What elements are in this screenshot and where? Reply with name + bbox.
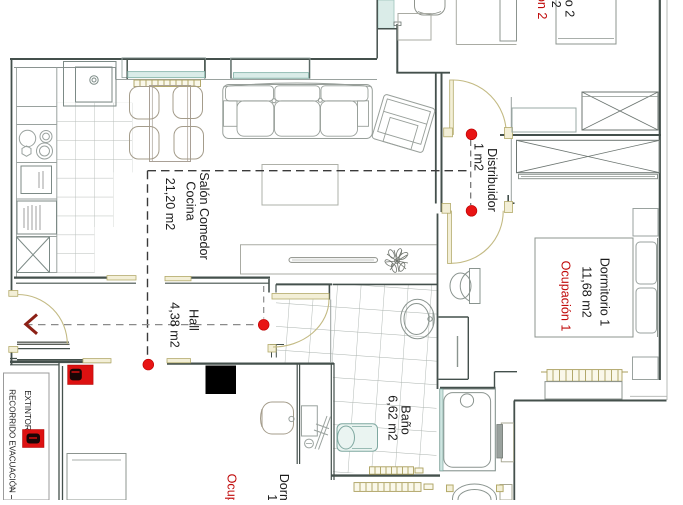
svg-text:Salón Comedor: Salón Comedor xyxy=(197,172,211,260)
svg-text:Ocupación 1: Ocupación 1 xyxy=(225,474,239,500)
svg-text:Dormitorio 2: Dormitorio 2 xyxy=(563,0,577,17)
svg-text:11,68 m2: 11,68 m2 xyxy=(580,266,594,318)
svg-text:Hall: Hall xyxy=(187,309,201,331)
svg-text:21,20 m2: 21,20 m2 xyxy=(163,178,177,231)
svg-text:11,96 m2: 11,96 m2 xyxy=(549,0,563,8)
svg-text:4,38 m2: 4,38 m2 xyxy=(168,302,182,348)
svg-text:Dormitorio 1: Dormitorio 1 xyxy=(598,258,612,327)
svg-text:Ocupación 2: Ocupación 2 xyxy=(535,0,549,19)
svg-text:RECORRIDO EVACUACIÓN: RECORRIDO EVACUACIÓN xyxy=(8,389,17,493)
svg-text:11,15 m2: 11,15 m2 xyxy=(265,494,279,500)
svg-text:Ocupación 1: Ocupación 1 xyxy=(559,261,573,332)
svg-text:Distribuidor: Distribuidor xyxy=(485,148,499,212)
svg-text:EXTINTOR: EXTINTOR xyxy=(23,390,32,431)
svg-text:1 m2: 1 m2 xyxy=(472,143,486,171)
svg-text:Cocina: Cocina xyxy=(184,181,198,220)
svg-text:6,62 m2: 6,62 m2 xyxy=(386,395,400,441)
